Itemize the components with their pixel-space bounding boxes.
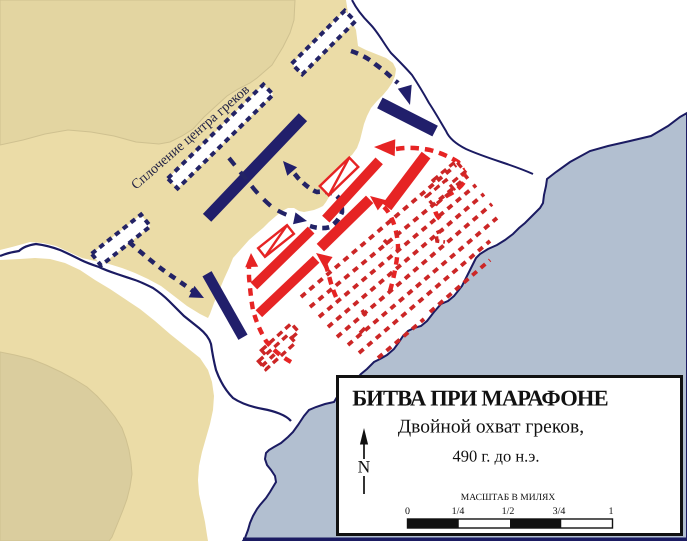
svg-text:Двойной охват греков,: Двойной охват греков, — [398, 417, 584, 438]
svg-text:МАСШТАБ В МИЛЯХ: МАСШТАБ В МИЛЯХ — [461, 493, 556, 503]
svg-text:1/2: 1/2 — [502, 506, 515, 517]
svg-text:1/4: 1/4 — [452, 506, 465, 517]
svg-text:N: N — [358, 457, 371, 477]
svg-text:1: 1 — [609, 506, 614, 517]
svg-text:0: 0 — [405, 506, 410, 517]
svg-text:3/4: 3/4 — [553, 506, 566, 517]
svg-text:БИТВА ПРИ МАРАФОНЕ: БИТВА ПРИ МАРАФОНЕ — [352, 386, 608, 411]
svg-text:490 г. до н.э.: 490 г. до н.э. — [453, 447, 540, 466]
